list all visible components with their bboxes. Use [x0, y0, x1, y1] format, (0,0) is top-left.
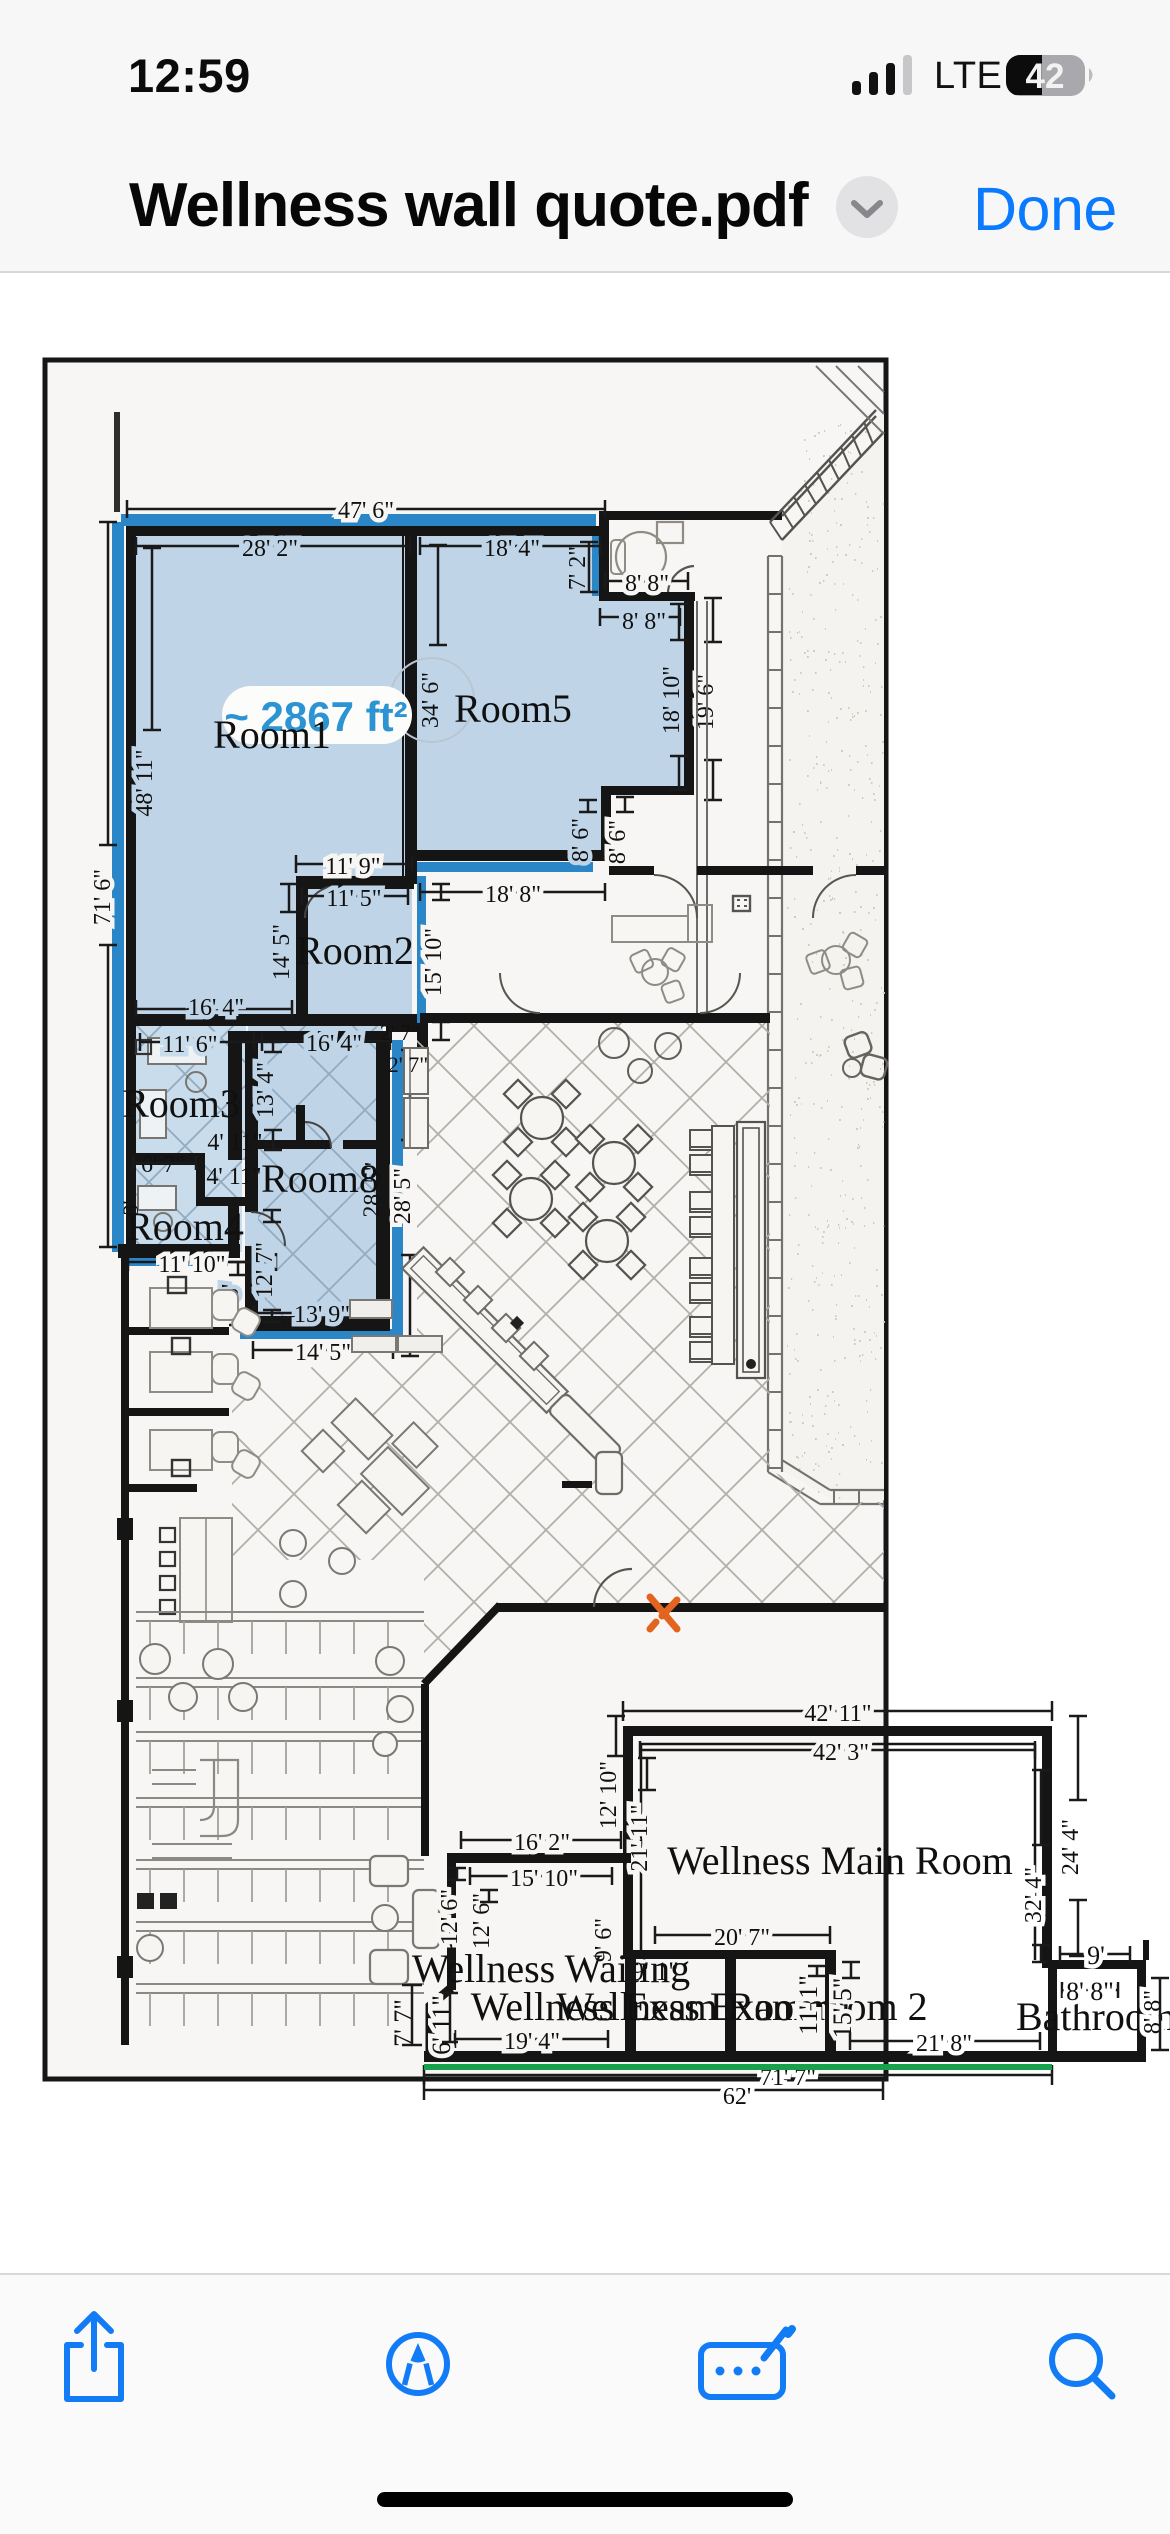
svg-text:9': 9' [1087, 1941, 1105, 1970]
svg-text:19' 4": 19' 4" [504, 2029, 560, 2055]
svg-text:20' 7": 20' 7" [714, 1925, 770, 1951]
svg-text:4' 11": 4' 11" [207, 1130, 262, 1156]
svg-text:11' 9": 11' 9" [325, 854, 380, 880]
svg-text:7' 7": 7' 7" [389, 1999, 418, 2047]
svg-text:Wellness Main Room: Wellness Main Room [667, 1838, 1013, 1883]
svg-text:Room4: Room4 [126, 1204, 244, 1249]
svg-text:14' 5": 14' 5" [295, 1340, 351, 1366]
svg-text:18' 8": 18' 8" [485, 882, 541, 908]
svg-text:Room2: Room2 [296, 928, 414, 973]
svg-text:Wellness Exam room 2: Wellness Exam room 2 [556, 1984, 927, 2029]
svg-text:8' 8": 8' 8" [1066, 1977, 1114, 2006]
svg-text:Room3: Room3 [122, 1081, 240, 1126]
svg-text:16' 4": 16' 4" [188, 995, 244, 1021]
svg-text:28' 5": 28' 5" [390, 1168, 416, 1224]
svg-text:13' 9": 13' 9" [294, 1302, 350, 1328]
svg-text:18' 10": 18' 10" [659, 666, 685, 734]
svg-text:42' 11": 42' 11" [804, 1701, 871, 1727]
svg-text:12' 10": 12' 10" [596, 1761, 622, 1829]
svg-text:34' 6": 34' 6" [418, 672, 444, 728]
svg-text:47' 6": 47' 6" [338, 498, 394, 524]
svg-text:71' 6": 71' 6" [90, 869, 116, 925]
svg-text:13' 4": 13' 4" [253, 1062, 279, 1118]
svg-text:15' 10": 15' 10" [510, 1866, 578, 1892]
svg-text:14' 5": 14' 5" [269, 924, 295, 980]
svg-text:21' 8": 21' 8" [916, 2031, 972, 2057]
svg-text:9' 6": 9' 6" [591, 1918, 617, 1962]
svg-text:15' 5": 15' 5" [828, 1978, 857, 2039]
svg-text:24' 4": 24' 4" [1058, 1819, 1084, 1875]
svg-text:11' 5": 11' 5" [326, 886, 381, 912]
svg-text:8' 8": 8' 8" [622, 609, 666, 635]
svg-text:Room1: Room1 [213, 712, 331, 757]
svg-text:18' 4": 18' 4" [484, 536, 540, 562]
svg-text:8' 6": 8' 6" [605, 820, 631, 864]
svg-text:62': 62' [723, 2084, 751, 2110]
svg-text:32' 4": 32' 4" [1021, 1867, 1047, 1923]
svg-text:16' 4": 16' 4" [306, 1031, 362, 1057]
svg-text:11' 6": 11' 6" [162, 1032, 217, 1058]
svg-text:11' 10": 11' 10" [158, 1252, 225, 1278]
svg-text:28' 5": 28' 5" [359, 1161, 387, 1218]
svg-text:6' 11": 6' 11" [427, 1995, 456, 2055]
svg-text:12' 7": 12' 7" [252, 1242, 278, 1298]
svg-text:2' 7": 2' 7" [380, 1020, 420, 1045]
svg-text:28' 2": 28' 2" [242, 536, 298, 562]
svg-text:2' 7": 2' 7" [388, 1052, 428, 1077]
svg-text:16' 2": 16' 2" [514, 1830, 570, 1856]
svg-text:15' 10": 15' 10" [421, 928, 447, 996]
svg-text:Room5: Room5 [454, 686, 572, 731]
svg-text:8' 6": 8' 6" [568, 818, 594, 862]
svg-text:8' 8": 8' 8" [625, 571, 669, 597]
svg-text:11' 1": 11' 1" [794, 1975, 823, 2035]
svg-text:12' 6": 12' 6" [437, 1889, 463, 1945]
svg-text:8' 8": 8' 8" [1140, 1990, 1166, 2034]
svg-text:9' 1": 9' 1" [631, 1957, 679, 1986]
svg-text:7' 2": 7' 2" [565, 546, 591, 590]
svg-text:6' 7": 6' 7" [141, 1152, 185, 1178]
svg-text:4' 11": 4' 11" [206, 1164, 261, 1190]
svg-text:42' 3": 42' 3" [813, 1740, 869, 1766]
svg-text:48' 11": 48' 11" [132, 749, 158, 816]
